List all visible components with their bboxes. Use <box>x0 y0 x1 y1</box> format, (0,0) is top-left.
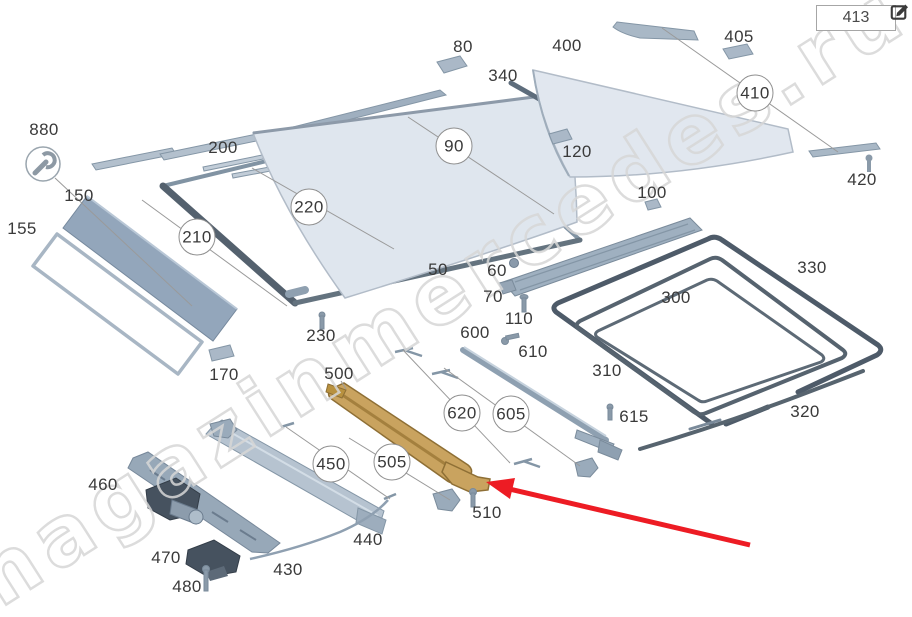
red-annotation-arrow <box>486 478 750 545</box>
rail-410-target <box>613 22 698 40</box>
exploded-parts-diagram: magazinmercedes.ru <box>0 0 912 617</box>
rail-420 <box>809 143 880 172</box>
screw-610 <box>502 333 520 344</box>
motor-470 <box>186 540 240 581</box>
t-screw-b <box>432 370 458 378</box>
screw-480 <box>203 566 210 592</box>
part-code-box[interactable]: 413 <box>816 5 896 31</box>
pin-615 <box>607 404 613 420</box>
roof-seals <box>554 237 881 449</box>
clip-605-target <box>575 458 598 477</box>
screw-510 <box>470 489 477 508</box>
clip-170 <box>209 345 234 361</box>
seal-320 <box>640 371 863 449</box>
wrench-icon <box>26 147 60 181</box>
pencil-square-icon <box>890 1 910 21</box>
parts-diagram-page: magazinmercedes.ru 880155150200210220230… <box>0 0 912 617</box>
t-screw-c <box>514 459 540 467</box>
block-80 <box>437 56 467 73</box>
part-code-value: 413 <box>843 9 870 27</box>
sunshade-panel-150 <box>63 196 237 341</box>
watermark-text: magazinmercedes.ru <box>0 0 912 617</box>
guide-rail-600 <box>463 347 622 460</box>
edit-icon[interactable] <box>889 1 911 23</box>
